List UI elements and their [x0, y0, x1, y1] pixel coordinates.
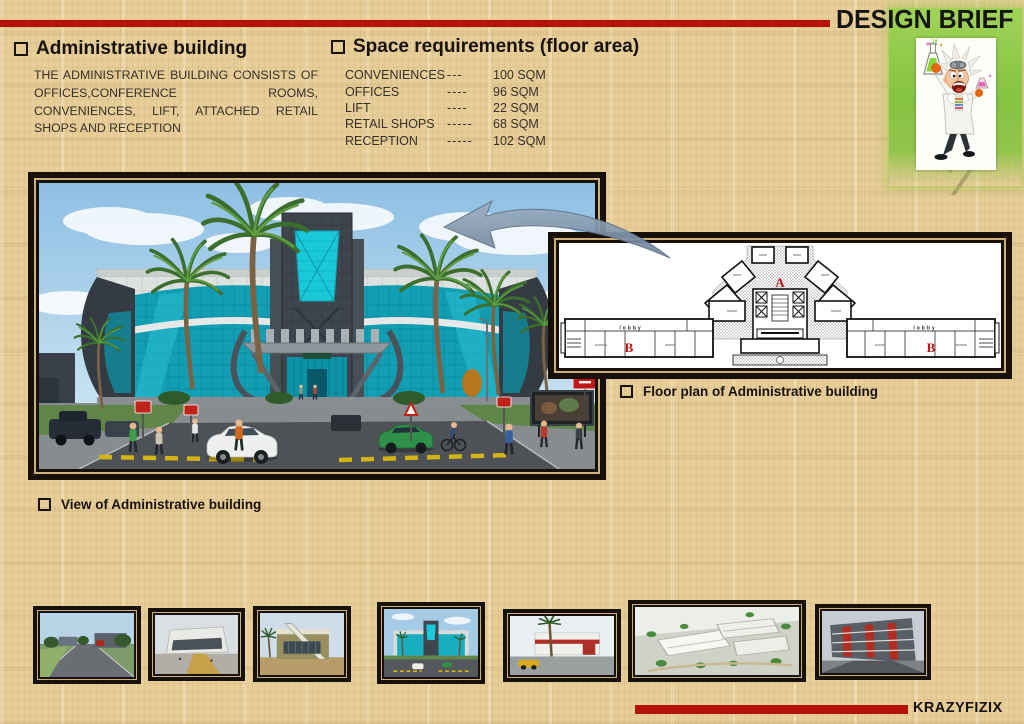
floor-plan-caption: Floor plan of Administrative building: [620, 384, 878, 399]
requirement-row: RECEPTION ----- 102 SQM: [345, 133, 661, 149]
thumbnail-retail-unit: [253, 606, 351, 682]
thumbnail-hostel-block: [815, 604, 931, 680]
requirement-row: LIFT ---- 22 SQM: [345, 100, 661, 116]
requirement-value: 68 SQM: [493, 117, 539, 131]
requirement-dashes: ----: [447, 85, 493, 99]
requirement-row: CONVENIENCES --- 100 SQM: [345, 67, 661, 83]
view-caption: View of Administrative building: [38, 497, 261, 512]
plan-zone-b-right-label: B: [927, 340, 936, 355]
bullet-square-icon: [14, 42, 28, 56]
requirement-label: CONVENIENCES: [345, 68, 447, 82]
admin-heading: Administrative building: [36, 38, 247, 60]
admin-body-text: THE ADMINISTRATIVE BUILDING CONSISTS OF …: [34, 67, 318, 138]
space-requirements-list: CONVENIENCES --- 100 SQM OFFICES ---- 96…: [345, 67, 661, 149]
thumbnail-aerial-massing: [628, 600, 806, 682]
brand-logo-text: KRAZYFIZIX: [913, 699, 1003, 716]
lift-core: [756, 292, 804, 338]
requirement-dashes: -----: [447, 134, 493, 148]
requirement-dashes: ---: [447, 68, 493, 82]
bullet-square-icon: [38, 498, 51, 511]
requirement-value: 102 SQM: [493, 134, 546, 148]
requirement-dashes: -----: [447, 117, 493, 131]
requirement-row: OFFICES ---- 96 SQM: [345, 83, 661, 99]
plan-zone-b-left-label: B: [625, 340, 634, 355]
page-title: DESIGN BRIEF: [836, 4, 1018, 35]
mascot-card: [916, 38, 996, 170]
floor-plan-caption-text: Floor plan of Administrative building: [643, 384, 878, 399]
bullet-square-icon: [620, 385, 633, 398]
plan-lobby-left-label: lobby: [619, 326, 642, 332]
thumbnail-admin-street-view: [377, 602, 485, 684]
bottom-red-rule: [635, 705, 908, 714]
requirement-label: OFFICES: [345, 85, 447, 99]
view-caption-text: View of Administrative building: [61, 497, 261, 512]
requirement-label: LIFT: [345, 101, 447, 115]
space-heading: Space requirements (floor area): [353, 36, 639, 58]
admin-section: Administrative building THE ADMINISTRATI…: [14, 38, 324, 138]
space-requirements-section: Space requirements (floor area) CONVENIE…: [331, 36, 661, 149]
thumbnail-auditorium: [148, 608, 245, 681]
thumbnail-site-entrance: [33, 606, 141, 684]
requirement-label: RECEPTION: [345, 134, 447, 148]
plan-lobby-right-label: lobby: [913, 326, 936, 332]
requirement-label: RETAIL SHOPS: [345, 117, 447, 131]
requirement-value: 100 SQM: [493, 68, 546, 82]
plan-zone-a-label: A: [775, 275, 785, 290]
thumbnail-gatehouse: [503, 609, 621, 682]
requirement-dashes: ----: [447, 101, 493, 115]
bullet-square-icon: [331, 40, 345, 54]
requirement-value: 22 SQM: [493, 101, 539, 115]
curved-arrow-icon: [438, 186, 673, 264]
top-red-rule: [0, 20, 830, 27]
requirement-row: RETAIL SHOPS ----- 68 SQM: [345, 116, 661, 132]
requirement-value: 96 SQM: [493, 85, 539, 99]
mad-scientist-icon: [916, 38, 996, 170]
slide: DESIGN BRIEF: [0, 0, 1024, 724]
